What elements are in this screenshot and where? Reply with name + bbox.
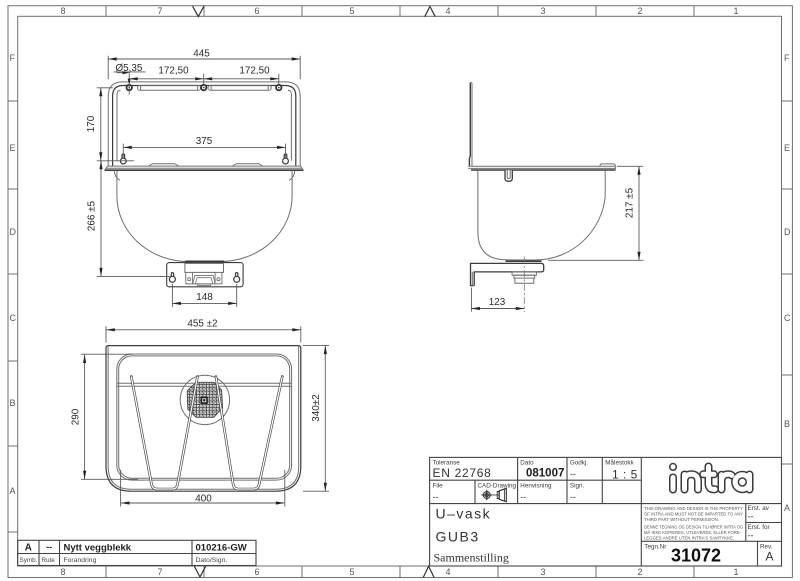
svg-text:010216-GW: 010216-GW [196,543,247,554]
svg-text:6: 6 [254,6,259,16]
svg-text:266 ±5: 266 ±5 [86,200,97,231]
svg-text:148: 148 [196,292,213,303]
svg-text:Rute: Rute [42,557,56,564]
svg-text:--: -- [748,512,754,522]
svg-text:A: A [766,550,774,564]
svg-text:1 : 5: 1 : 5 [612,468,638,482]
svg-text:--: -- [46,542,52,552]
svg-text:Godkj.: Godkj. [570,460,588,467]
svg-text:--: -- [570,492,576,502]
svg-text:MÅ IKKE KOPIERES, UTLEVERES, E: MÅ IKKE KOPIERES, UTLEVERES, ELLER FORE- [644,529,741,536]
svg-text:E: E [784,143,790,153]
svg-text:Målestokk: Målestokk [605,459,634,467]
svg-text:U–vask: U–vask [436,506,492,522]
svg-text:GUB3: GUB3 [436,529,480,545]
svg-text:4: 4 [445,567,450,577]
svg-text:217 ±5: 217 ±5 [625,187,636,218]
svg-text:455 ±2: 455 ±2 [187,319,217,330]
svg-text:1: 1 [733,567,738,577]
svg-text:400: 400 [195,494,212,505]
svg-text:172,50: 172,50 [158,66,189,77]
svg-text:CAD-Drawing: CAD-Drawing [478,482,517,489]
svg-text:DENNE TEGNING OG DESIGN TILHØR: DENNE TEGNING OG DESIGN TILHØRER INTRA O… [644,525,743,531]
svg-text:C: C [784,313,791,323]
svg-text:1: 1 [733,6,738,16]
svg-text:375: 375 [196,136,213,147]
svg-text:LEGGES ANDRE UTEN INTRA'S SAMT: LEGGES ANDRE UTEN INTRA'S SAMTYKKE. [644,536,734,542]
svg-text:F: F [784,53,790,63]
svg-text:7: 7 [157,567,162,577]
svg-text:F: F [10,53,16,63]
svg-text:Forandring: Forandring [64,557,97,564]
svg-text:--: -- [433,492,439,502]
svg-text:Sammenstilling: Sammenstilling [434,551,509,565]
svg-text:081007: 081007 [526,468,564,480]
svg-text:6: 6 [254,567,259,577]
svg-text:--: -- [748,531,754,541]
svg-text:5: 5 [349,567,354,577]
svg-text:Dato/Sign.: Dato/Sign. [196,557,228,564]
svg-text:Symb.: Symb. [20,557,38,564]
svg-text:170: 170 [86,115,97,132]
svg-text:7: 7 [157,6,162,16]
svg-text:A: A [784,503,790,513]
svg-text:445: 445 [193,48,210,59]
svg-text:5: 5 [349,6,354,16]
svg-text:3: 3 [540,6,545,16]
svg-text:File: File [433,482,444,489]
svg-text:E: E [10,143,16,153]
svg-text:Sign.: Sign. [570,482,585,489]
svg-text:EN 22768: EN 22768 [433,466,492,480]
svg-text:--: -- [570,469,576,479]
svg-text:Tegn.Nr: Tegn.Nr [644,543,666,550]
svg-text:8: 8 [60,567,65,577]
svg-text:OF INTRA AND MUST NOT BE IMPAR: OF INTRA AND MUST NOT BE IMPARTED TO ANY [644,512,744,518]
svg-text:Henvisning: Henvisning [520,482,552,489]
svg-text:340±2: 340±2 [311,394,322,421]
svg-text:123: 123 [489,297,506,308]
svg-text:D: D [10,227,17,237]
svg-text:Nytt veggblekk: Nytt veggblekk [64,543,132,554]
svg-text:3: 3 [540,567,545,577]
svg-text:A: A [25,543,32,554]
svg-text:--: -- [520,492,526,502]
svg-text:Dato: Dato [520,460,534,467]
svg-text:2: 2 [637,567,642,577]
svg-text:290: 290 [70,408,81,425]
svg-text:B: B [10,398,16,408]
svg-text:D: D [784,227,791,237]
svg-text:THIS DRAWING AND DESIGN IS THE: THIS DRAWING AND DESIGN IS THE PROPERTY [644,506,744,512]
svg-text:A: A [10,486,16,496]
svg-text:2: 2 [637,6,642,16]
svg-text:4: 4 [445,6,450,16]
svg-text:8: 8 [60,6,65,16]
svg-text:172,50: 172,50 [239,66,270,77]
svg-text:31072: 31072 [671,546,721,566]
svg-text:THIRD PART WITHOUT PERMISSION.: THIRD PART WITHOUT PERMISSION. [644,517,719,523]
svg-text:C: C [10,313,17,323]
svg-text:B: B [784,419,790,429]
